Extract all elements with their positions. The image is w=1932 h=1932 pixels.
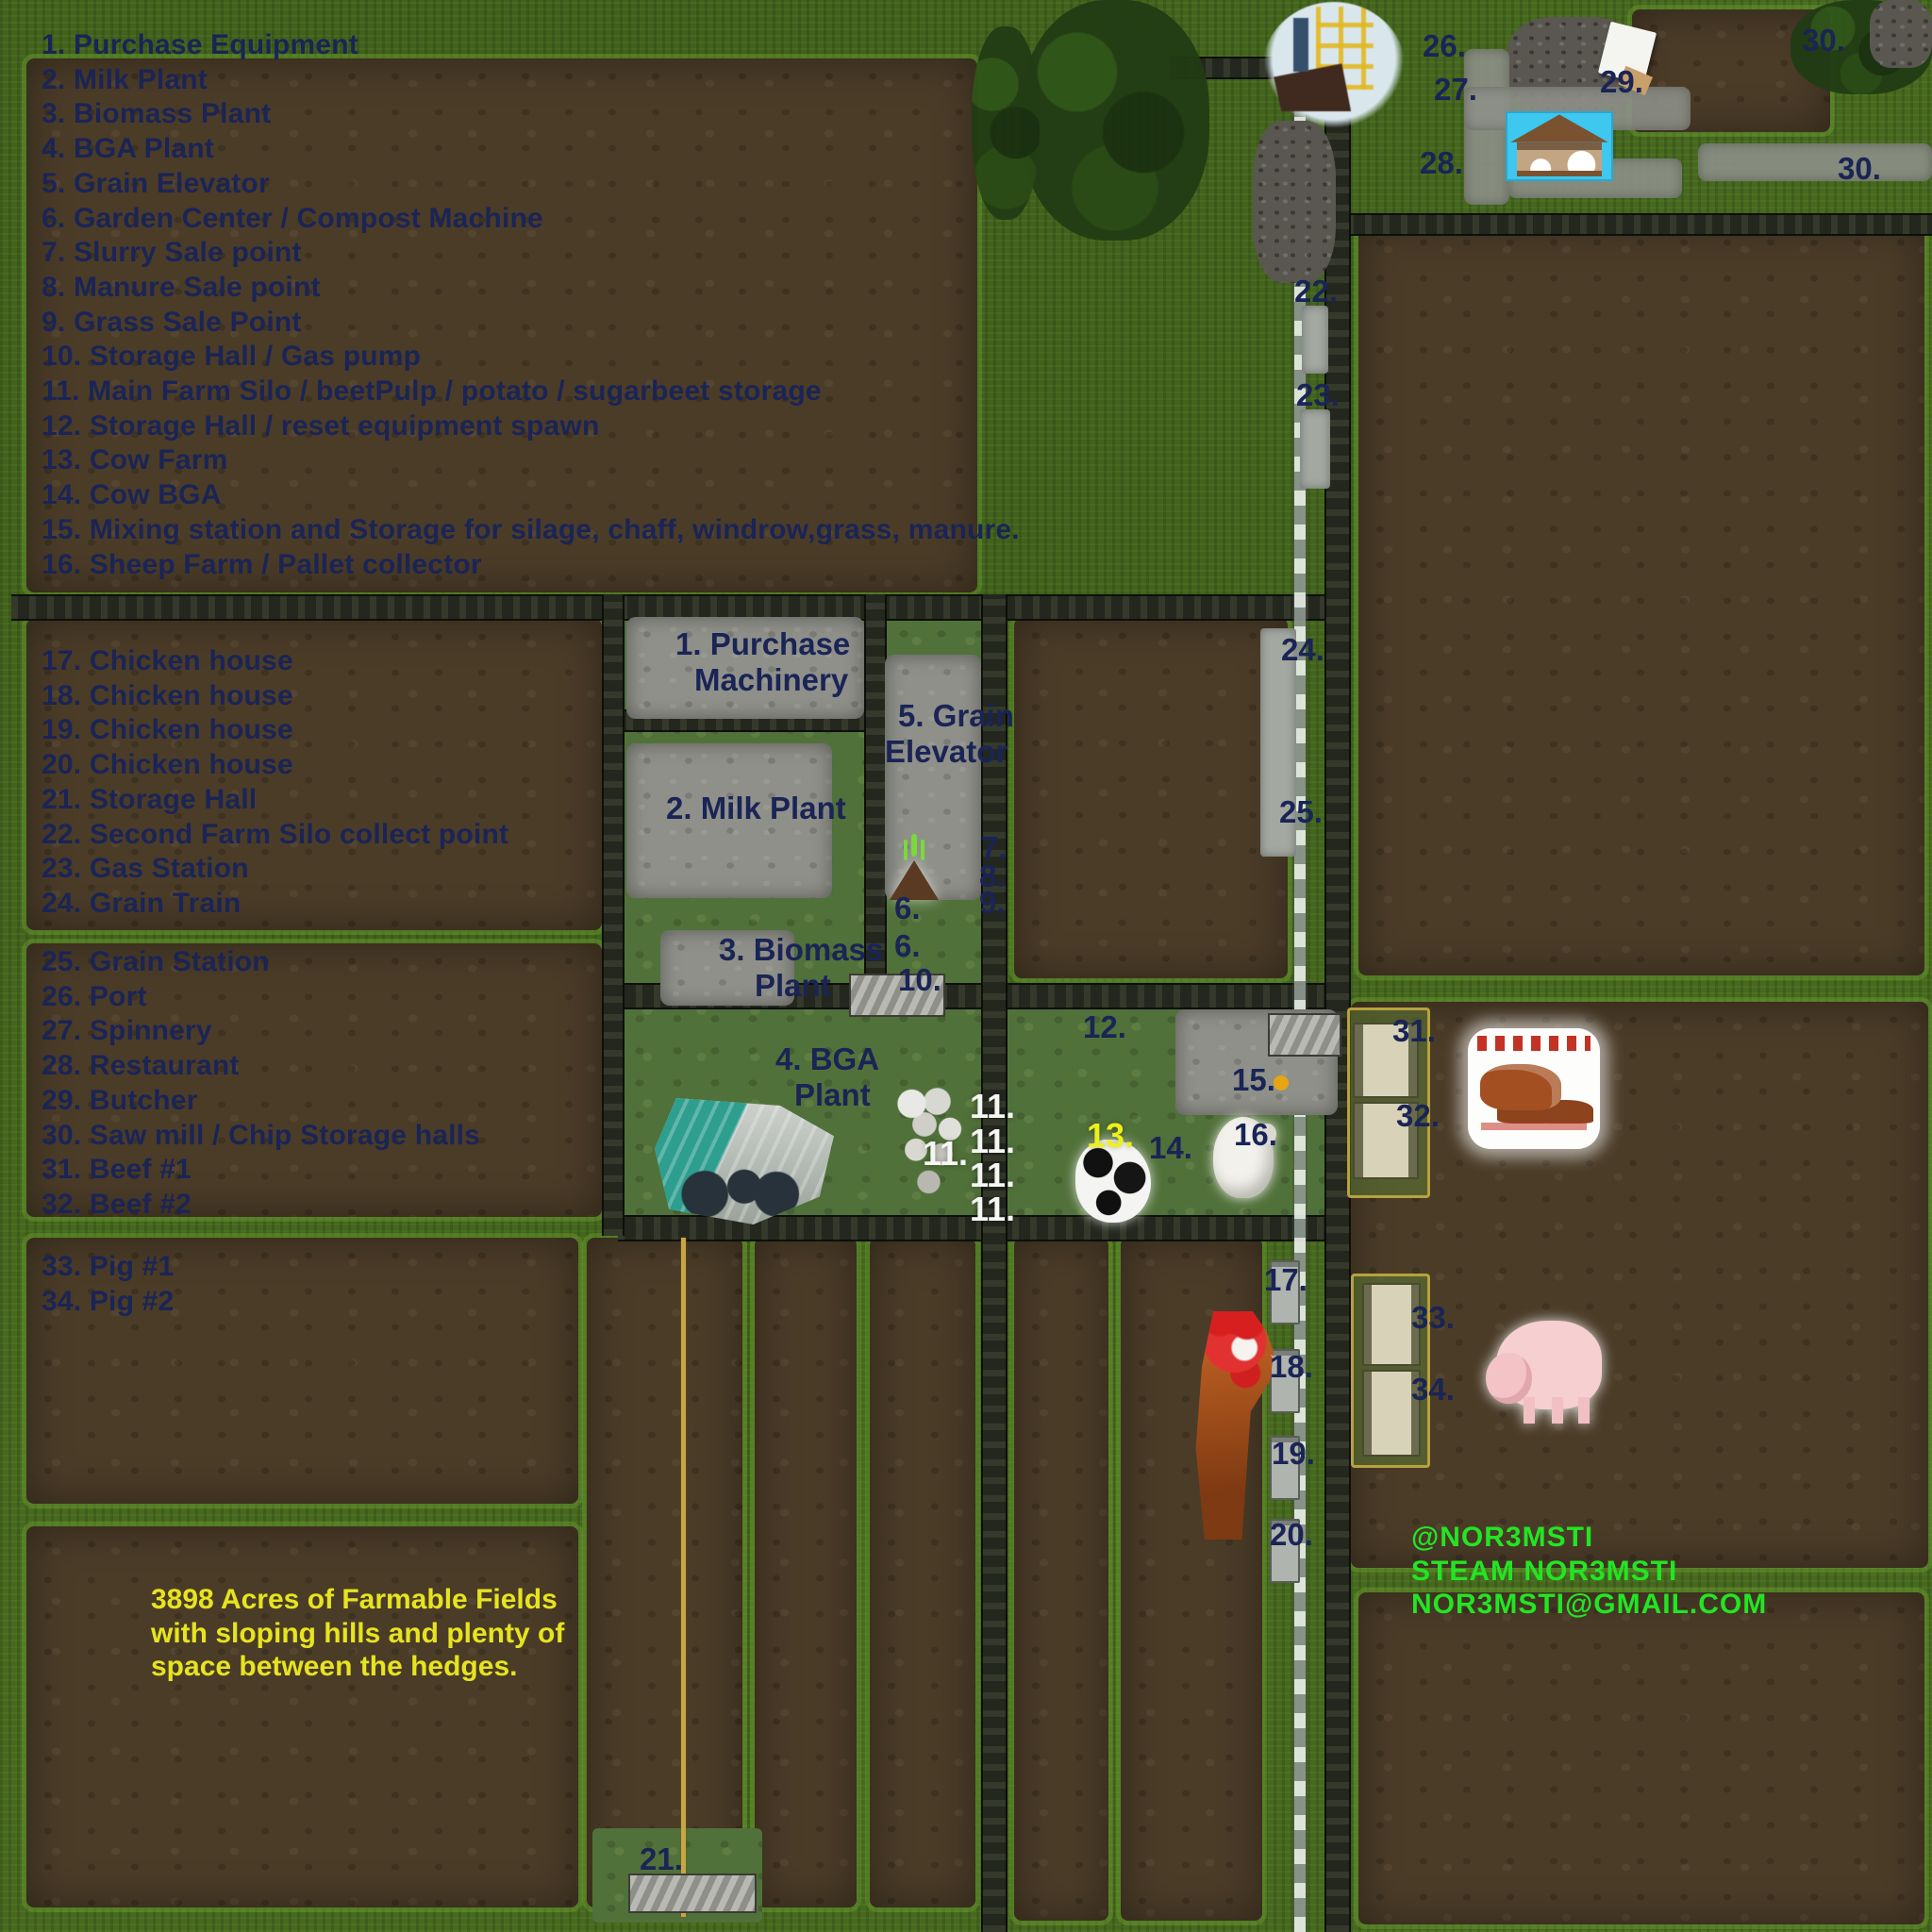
legend-item: 30. Saw mill / Chip Storage halls — [42, 1119, 480, 1154]
legend-item: 11. Main Farm Silo / beetPulp / potato /… — [42, 375, 1020, 409]
legend-item: 25. Grain Station — [42, 945, 480, 980]
map-label: 6. — [894, 930, 921, 961]
map-label: 33. — [1411, 1302, 1455, 1333]
map-label: Plant — [794, 1079, 871, 1110]
map-label: 10. — [898, 964, 941, 995]
map-label: 1. Purchase — [675, 628, 850, 659]
map-label: Plant — [755, 970, 831, 1001]
legend-item: 3. Biomass Plant — [42, 97, 1020, 132]
map-label: 11. — [970, 1192, 1015, 1226]
trees-top-a — [1021, 0, 1209, 241]
map-label: 3. Biomass — [719, 934, 883, 965]
field-plot — [1358, 225, 1924, 975]
legend-3: 25. Grain Station26. Port27. Spinnery28.… — [42, 945, 480, 1223]
map-label: 2. Milk Plant — [666, 792, 846, 824]
map-label: 32. — [1396, 1100, 1440, 1131]
map-label: 11. — [970, 1124, 1015, 1158]
map-label: 19. — [1272, 1438, 1315, 1469]
map-label: 13. — [1087, 1119, 1134, 1153]
map-label: 12. — [1083, 1011, 1126, 1042]
storage-hall-21 — [628, 1874, 757, 1913]
map-label: 11. — [970, 1158, 1015, 1192]
pig-image — [1496, 1321, 1602, 1409]
field-plot — [1014, 618, 1288, 978]
legend-item: 32. Beef #2 — [42, 1188, 480, 1223]
legend-1: 1. Purchase Equipment2. Milk Plant3. Bio… — [42, 28, 1020, 582]
map-label: 15. — [1232, 1064, 1275, 1095]
info_note-line: with sloping hills and plenty of — [151, 1617, 564, 1651]
legend-2: 17. Chicken house18. Chicken house19. Ch… — [42, 644, 508, 922]
station-22 — [1302, 306, 1328, 374]
contact-line: STEAM NOR3MSTI — [1411, 1555, 1767, 1589]
map-label: 9. — [979, 887, 1006, 918]
map-label: 16. — [1234, 1119, 1277, 1150]
legend-item: 28. Restaurant — [42, 1049, 480, 1084]
legend-item: 12. Storage Hall / reset equipment spawn — [42, 409, 1020, 444]
legend-item: 2. Milk Plant — [42, 63, 1020, 98]
legend-item: 1. Purchase Equipment — [42, 28, 1020, 63]
road — [981, 594, 1008, 1932]
info_note-line: 3898 Acres of Farmable Fields — [151, 1583, 564, 1617]
map-label: 11. — [923, 1137, 968, 1171]
map-label: Elevator — [885, 736, 1008, 767]
map-label: Machinery — [694, 664, 848, 695]
legend-item: 17. Chicken house — [42, 644, 508, 679]
map-label: 23. — [1296, 379, 1340, 410]
rubble-c — [1870, 0, 1932, 68]
legend-item: 10. Storage Hall / Gas pump — [42, 340, 1020, 375]
legend-item: 4. BGA Plant — [42, 132, 1020, 167]
map-label: 21. — [640, 1843, 683, 1874]
legend-item: 8. Manure Sale point — [42, 271, 1020, 306]
road — [1347, 213, 1932, 236]
legend-item: 7. Slurry Sale point — [42, 236, 1020, 271]
map-label: 18. — [1270, 1351, 1313, 1382]
legend-item: 24. Grain Train — [42, 887, 508, 922]
yellow-path — [681, 1238, 686, 1917]
legend-item: 34. Pig #2 — [42, 1285, 174, 1320]
map-canvas: 1. Purchase Equipment2. Milk Plant3. Bio… — [0, 0, 1932, 1932]
legend-item: 26. Port — [42, 980, 480, 1015]
port-ship-photo — [1262, 2, 1406, 136]
map-label: 5. Grain — [898, 700, 1014, 731]
map-label: 11. — [970, 1090, 1015, 1124]
field-plot — [870, 1238, 975, 1907]
field-plot — [1358, 1592, 1924, 1924]
legend-item: 27. Spinnery — [42, 1014, 480, 1049]
map-label: 6. — [894, 892, 921, 924]
map-label: 14. — [1149, 1132, 1192, 1163]
info_note-line: space between the hedges. — [151, 1650, 564, 1684]
road — [1324, 55, 1351, 1932]
legend-item: 14. Cow BGA — [42, 478, 1020, 513]
info_note: 3898 Acres of Farmable Fieldswith slopin… — [151, 1583, 564, 1684]
legend-item: 31. Beef #1 — [42, 1153, 480, 1188]
legend-4: 33. Pig #134. Pig #2 — [42, 1250, 174, 1319]
rubble-b — [1253, 121, 1336, 283]
legend-item: 29. Butcher — [42, 1084, 480, 1119]
legend-item: 20. Chicken house — [42, 748, 508, 783]
gray-strip-d — [1698, 143, 1932, 181]
map-label: 27. — [1434, 74, 1477, 105]
map-label: 4. BGA — [775, 1043, 879, 1074]
beef-diagram — [1468, 1028, 1600, 1149]
legend-item: 13. Cow Farm — [42, 443, 1020, 478]
map-label: 24. — [1281, 634, 1324, 665]
map-label: 28. — [1420, 147, 1463, 178]
legend-item: 6. Garden Center / Compost Machine — [42, 202, 1020, 237]
field-plot — [1014, 1238, 1108, 1921]
contact-line: @NOR3MSTI — [1411, 1521, 1767, 1555]
legend-item: 22. Second Farm Silo collect point — [42, 818, 508, 853]
wool-factory-cartoon — [1506, 111, 1613, 181]
mixing-yellow-dot — [1274, 1075, 1289, 1091]
legend-item: 23. Gas Station — [42, 852, 508, 887]
map-label: 25. — [1279, 796, 1323, 827]
contact: @NOR3MSTISTEAM NOR3MSTINOR3MSTI@GMAIL.CO… — [1411, 1521, 1767, 1622]
field-plot — [1351, 1002, 1928, 1568]
field-plot — [587, 1238, 742, 1907]
map-label: 22. — [1294, 275, 1338, 307]
map-label: 20. — [1270, 1519, 1313, 1550]
map-label: 31. — [1392, 1015, 1436, 1046]
legend-item: 21. Storage Hall — [42, 783, 508, 818]
legend-item: 33. Pig #1 — [42, 1250, 174, 1285]
legend-item: 19. Chicken house — [42, 713, 508, 748]
map-label: 30. — [1802, 25, 1845, 56]
road — [602, 594, 625, 1236]
storage-hall-12 — [1268, 1013, 1341, 1057]
map-label: 34. — [1411, 1374, 1455, 1405]
map-label: 30. — [1838, 153, 1881, 184]
legend-item: 15. Mixing station and Storage for silag… — [42, 513, 1020, 548]
map-label: 17. — [1264, 1264, 1307, 1295]
legend-item: 16. Sheep Farm / Pallet collector — [42, 548, 1020, 583]
legend-item: 5. Grain Elevator — [42, 167, 1020, 202]
map-label: 26. — [1423, 30, 1466, 61]
legend-item: 18. Chicken house — [42, 679, 508, 714]
map-label: 29. — [1600, 66, 1643, 97]
field-plot — [755, 1238, 857, 1907]
contact-line: NOR3MSTI@GMAIL.COM — [1411, 1588, 1767, 1622]
legend-item: 9. Grass Sale Point — [42, 306, 1020, 341]
gas-23 — [1300, 409, 1330, 489]
